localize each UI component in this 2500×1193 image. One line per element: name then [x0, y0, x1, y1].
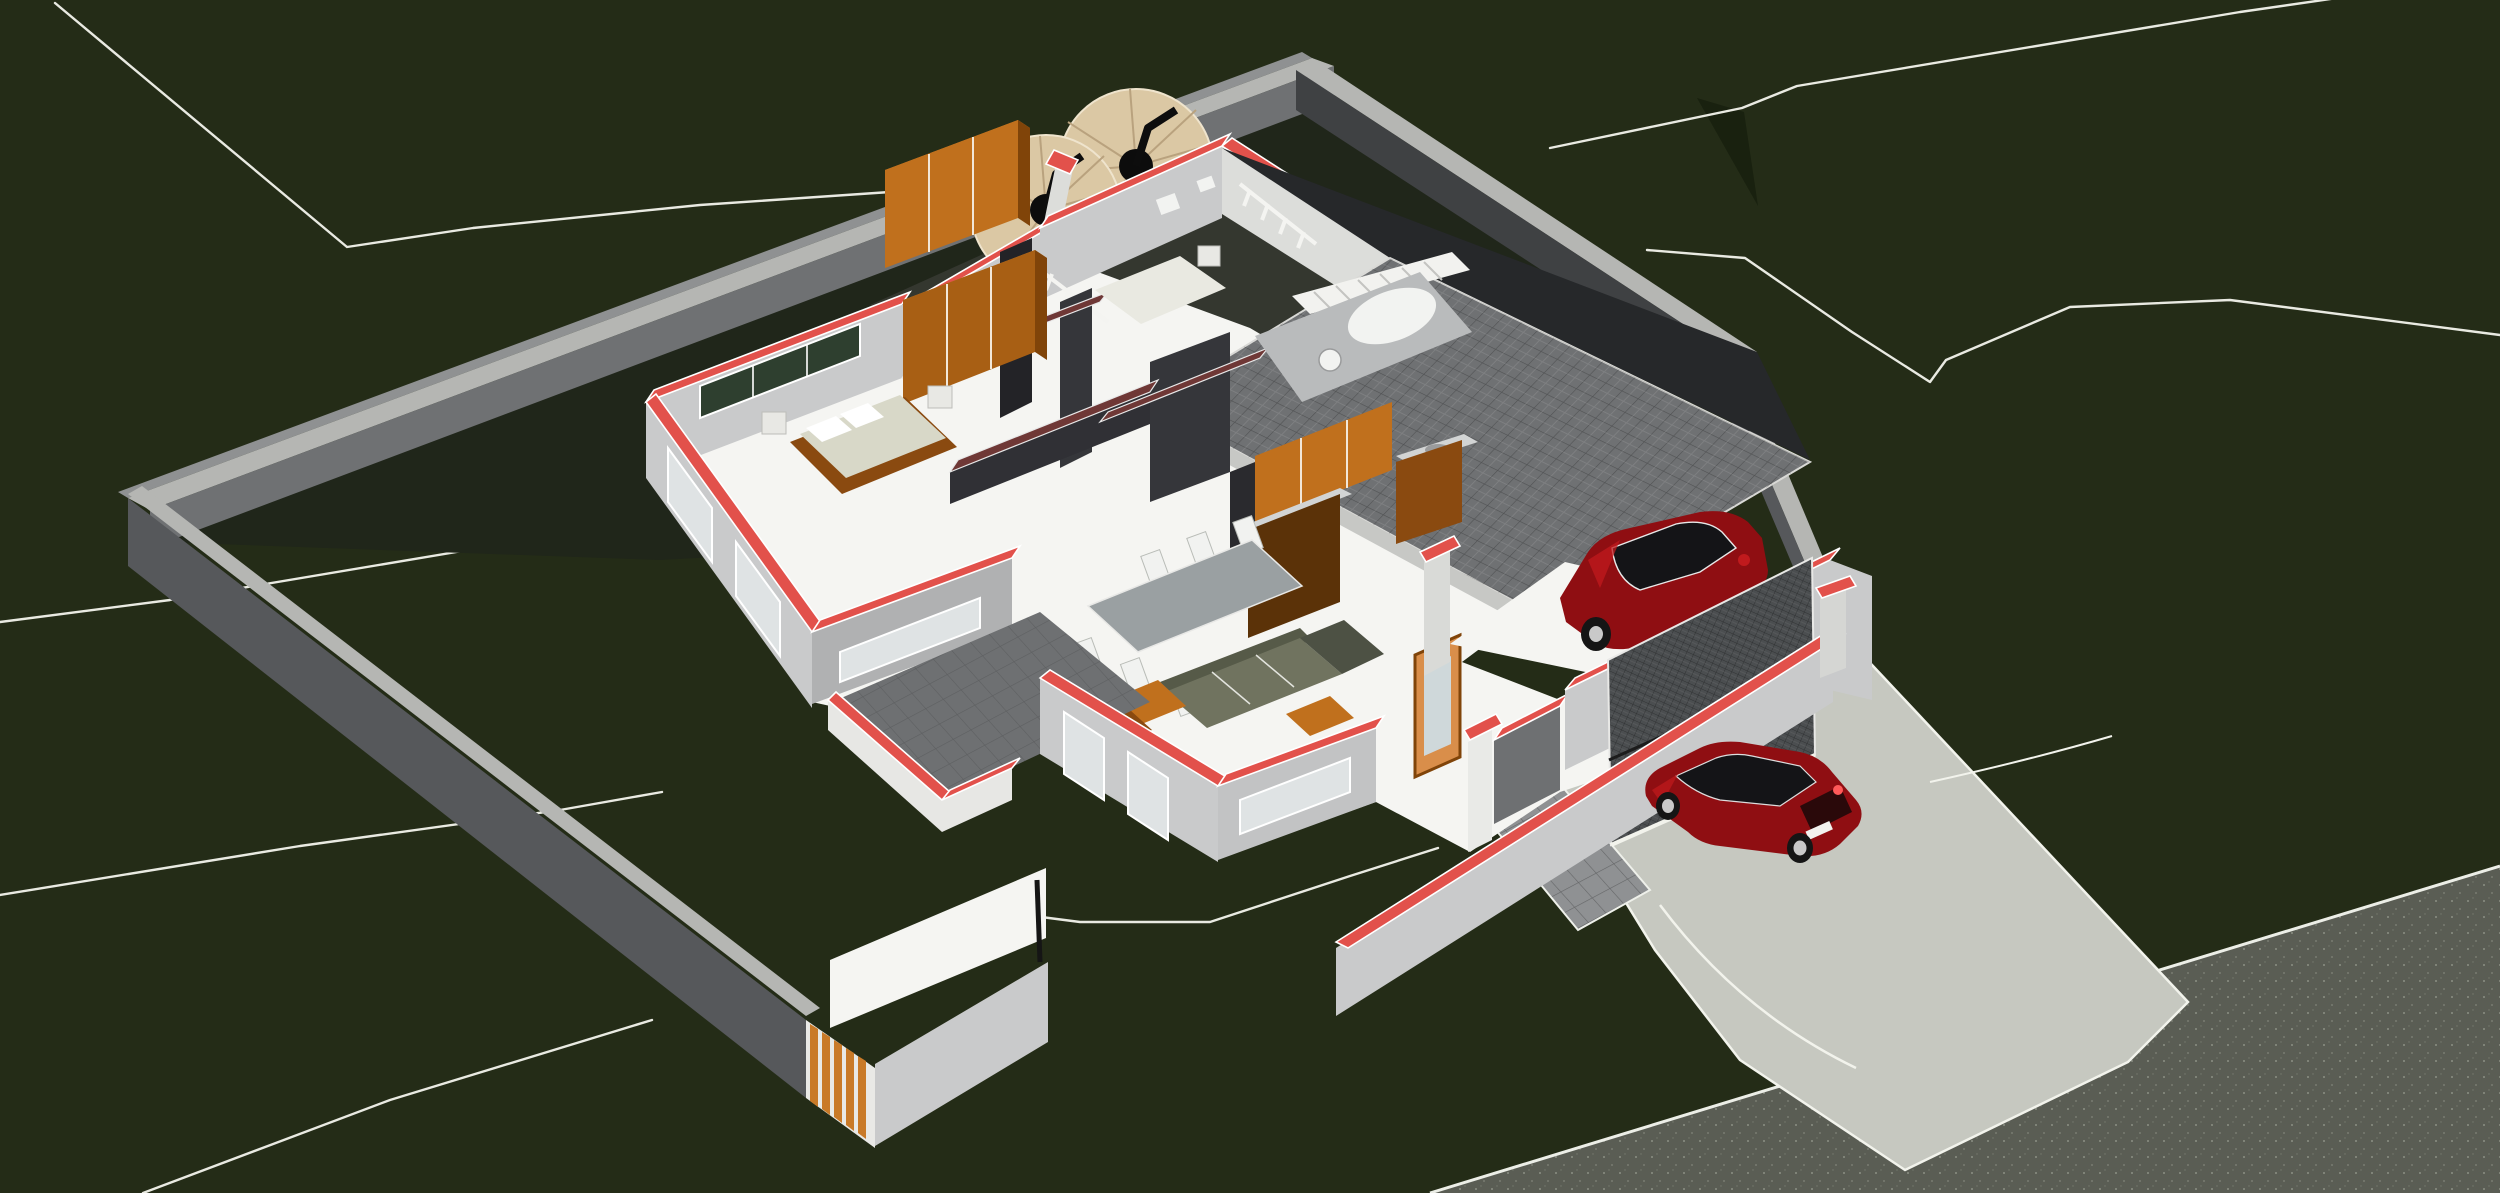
interior-wall [1150, 332, 1230, 502]
garage-left-wall [1424, 548, 1450, 676]
render-viewport [0, 0, 2500, 1193]
nightstand [928, 386, 952, 408]
cutaway-render [0, 0, 2500, 1193]
nightstand [1198, 246, 1220, 266]
nightstand [762, 412, 786, 434]
entry-pillar [1468, 730, 1492, 852]
suv-mirror [1738, 554, 1750, 566]
tail-light [1833, 785, 1843, 795]
downpipe [1037, 880, 1040, 962]
wash-basin [1319, 349, 1341, 371]
gate-pillar [1820, 588, 1846, 678]
